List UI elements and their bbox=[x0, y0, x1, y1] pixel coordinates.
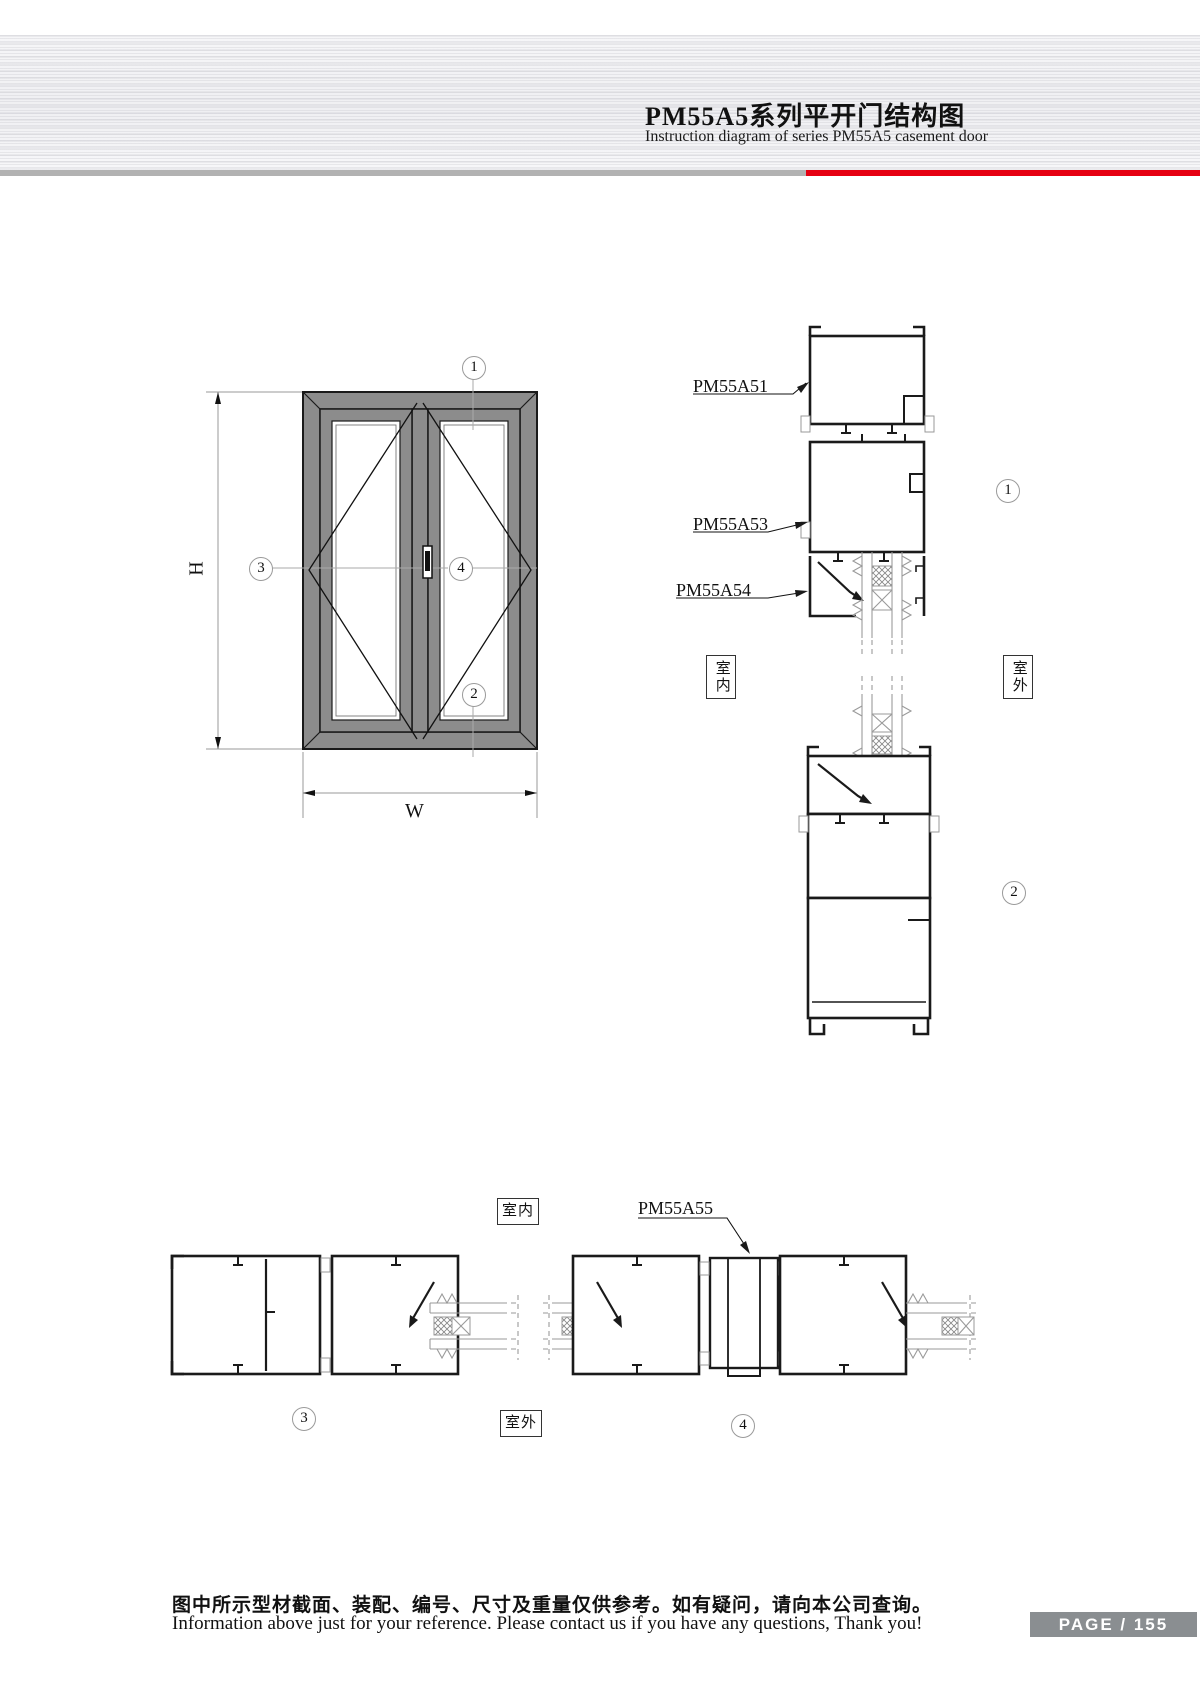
section-3-drawing bbox=[172, 1256, 520, 1374]
callout-section-1: 1 bbox=[996, 479, 1020, 503]
callout-section-3: 3 bbox=[292, 1407, 316, 1431]
footer-note-en: Information above just for your referenc… bbox=[172, 1613, 922, 1635]
profile-label-pm55a55: PM55A55 bbox=[638, 1198, 713, 1219]
profile-label-pm55a51: PM55A51 bbox=[693, 376, 768, 397]
callout-section-2: 2 bbox=[1002, 881, 1026, 905]
callout-section-4: 4 bbox=[731, 1414, 755, 1438]
outdoor-label-vertical: 室外 bbox=[1003, 655, 1033, 699]
profile-label-pm55a53: PM55A53 bbox=[693, 514, 768, 535]
callout-front-left: 3 bbox=[249, 557, 273, 581]
outdoor-label-horizontal: 室外 bbox=[500, 1410, 542, 1437]
profile-label-pm55a54: PM55A54 bbox=[676, 580, 751, 601]
dim-width-label: W bbox=[405, 800, 424, 823]
catalog-page: PM55A5系列平开门结构图 Instruction diagram of se… bbox=[0, 0, 1200, 1697]
dim-height-label: H bbox=[186, 561, 209, 575]
technical-drawing bbox=[0, 0, 1200, 1697]
indoor-label-vertical: 室内 bbox=[706, 655, 736, 699]
callout-front-top: 1 bbox=[462, 356, 486, 380]
callout-front-bottom: 2 bbox=[462, 683, 486, 707]
callout-front-center: 4 bbox=[449, 557, 473, 581]
section-4-drawing bbox=[543, 1218, 978, 1376]
page-number-badge: PAGE / 155 bbox=[1030, 1612, 1197, 1637]
front-view-drawing bbox=[206, 378, 537, 818]
section-2-drawing bbox=[799, 676, 939, 1034]
indoor-label-horizontal: 室内 bbox=[497, 1198, 539, 1225]
